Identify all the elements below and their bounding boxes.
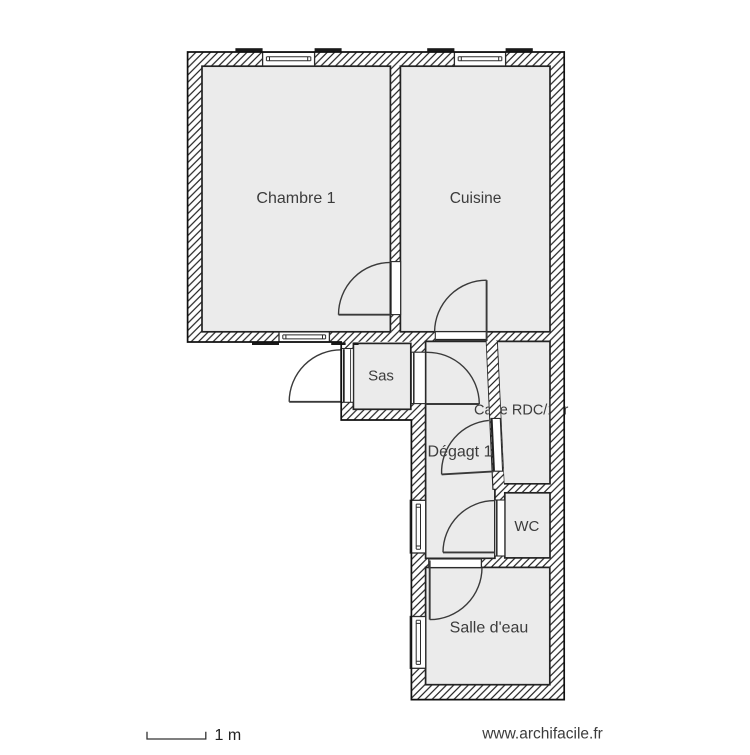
svg-text:www.archifacile.fr: www.archifacile.fr (481, 726, 603, 743)
svg-text:1 m: 1 m (215, 727, 242, 744)
svg-text:WC: WC (514, 518, 539, 535)
svg-text:Sas: Sas (368, 368, 394, 385)
svg-text:Cuisine: Cuisine (450, 190, 502, 207)
svg-text:Salle d'eau: Salle d'eau (450, 619, 529, 636)
svg-text:Chambre 1: Chambre 1 (256, 190, 335, 207)
svg-text:Dégagt 1: Dégagt 1 (428, 443, 493, 460)
